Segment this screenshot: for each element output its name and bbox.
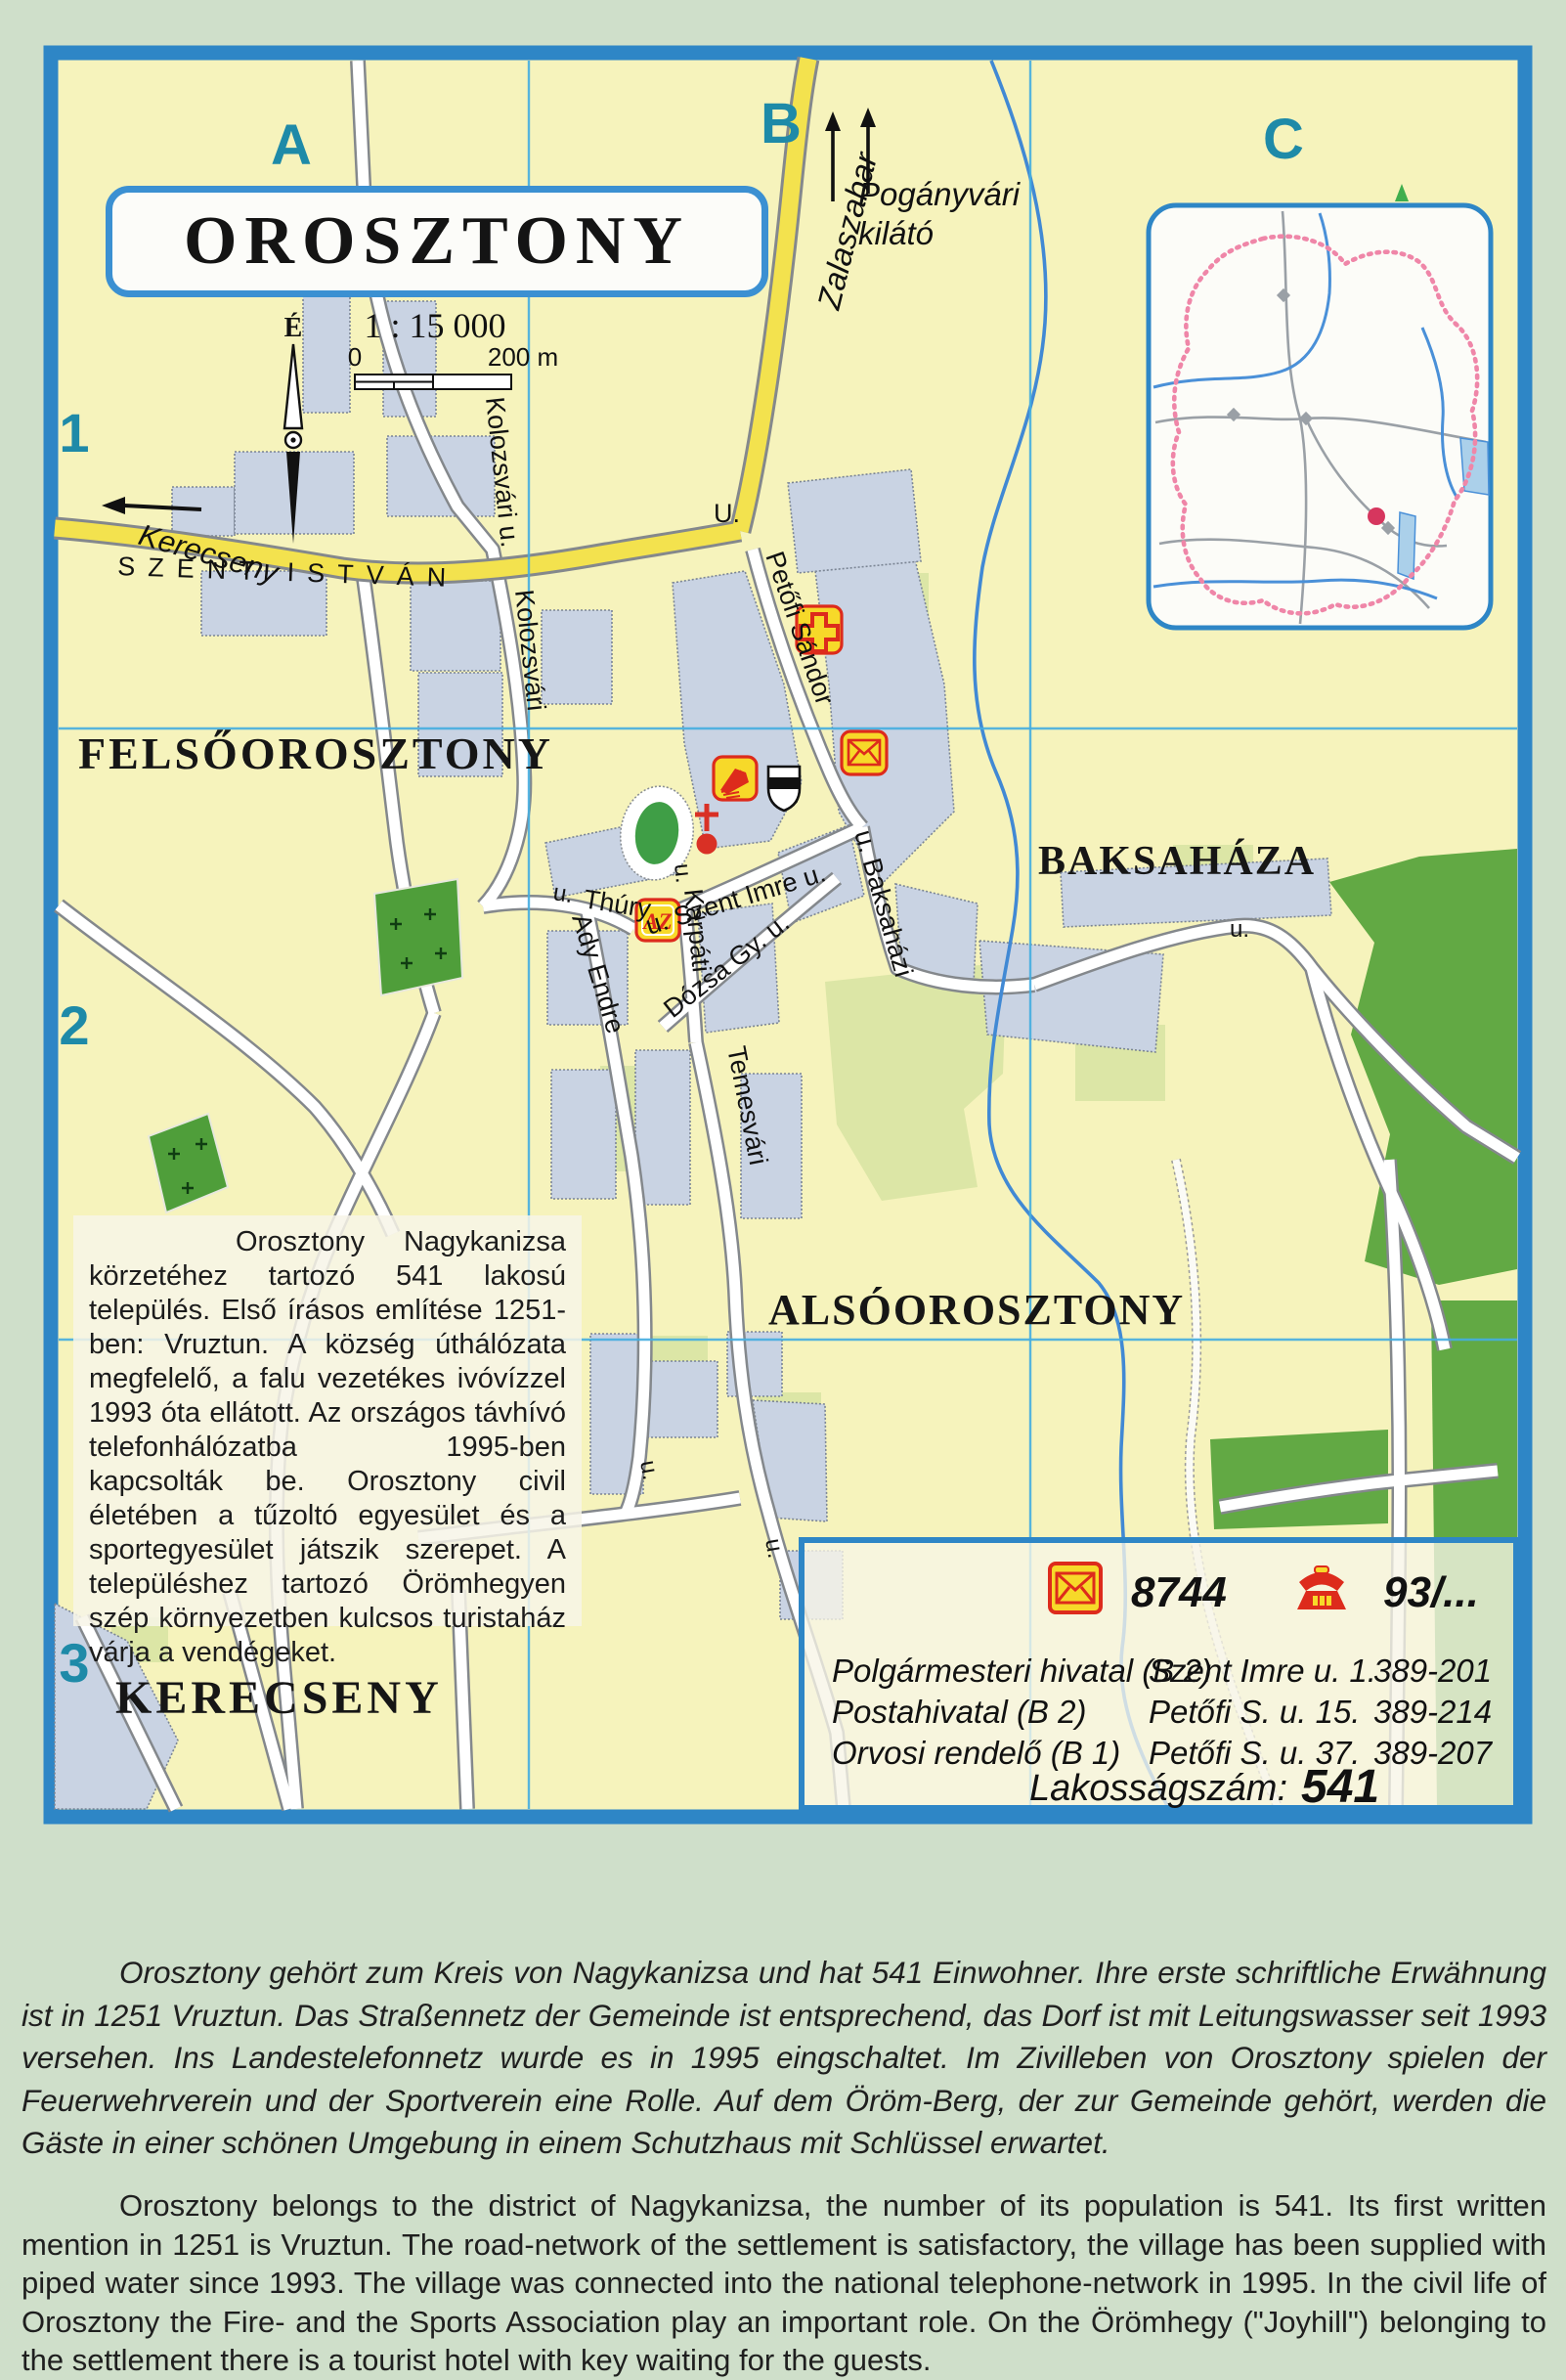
entry-phone: 389-207 — [1373, 1735, 1492, 1772]
grid-column-a: A — [271, 113, 312, 177]
map-title-box: OROSZTONY — [106, 186, 768, 297]
description-box-hu: Orosztony Nagykanizsa körzetéhez tartozó… — [73, 1215, 582, 1626]
location-red-dot — [1368, 507, 1385, 525]
scale-ratio: 1 : 15 000 — [364, 306, 505, 345]
paragraph-english-text: Orosztony belongs to the district of Nag… — [22, 2186, 1546, 2380]
cemetery-1 — [374, 879, 462, 995]
post-envelope-icon — [842, 731, 887, 774]
compass-north-label: É — [284, 313, 303, 343]
scale-distance: 200 m — [488, 342, 558, 372]
postal-envelope-icon — [1047, 1561, 1104, 1615]
entry-phone: 389-201 — [1373, 1653, 1492, 1690]
entry-phone: 389-214 — [1373, 1694, 1492, 1731]
label-baksahaza: BAKSAHÁZA — [1038, 838, 1316, 884]
inset-overview-map — [1149, 184, 1491, 628]
paragraph-english: Orosztony belongs to the district of Nag… — [22, 2186, 1546, 2380]
street-baksahaza-road-u: u. — [1230, 916, 1249, 943]
paragraph-german: Orosztony gehört zum Kreis von Nagykaniz… — [22, 1952, 1546, 2165]
paragraph-german-text: Orosztony gehört zum Kreis von Nagykaniz… — [22, 1952, 1546, 2165]
grid-column-c: C — [1263, 108, 1304, 171]
label-kerecseny: KERECSENY — [115, 1672, 443, 1724]
street-thury-u: u. — [551, 879, 575, 908]
description-text-hu: Orosztony Nagykanizsa körzetéhez tartozó… — [89, 1226, 566, 1668]
phone-prefix: 93/... — [1383, 1568, 1479, 1617]
info-box: 8744 93/... Polgármesteri hivatal (B 2) … — [799, 1537, 1519, 1811]
grid-column-b: B — [761, 92, 802, 155]
entry-name: Orvosi rendelő (B 1) — [832, 1735, 1120, 1772]
library-book-icon — [714, 757, 757, 800]
map-title: OROSZTONY — [184, 202, 690, 281]
entry-address: Petőfi S. u. 15. — [1149, 1694, 1360, 1731]
inset-lake-small — [1398, 512, 1415, 579]
street-karpati-u: u. — [669, 862, 697, 885]
grid-row-1: 1 — [59, 402, 89, 463]
scale-zero: 0 — [348, 342, 362, 372]
lookout-label-line2: kilátó — [858, 215, 934, 251]
entry-address: Szent Imre u. 1. — [1149, 1653, 1376, 1690]
population-value: 541 — [1301, 1760, 1379, 1814]
street-szent-istvan-u: U. — [714, 499, 740, 528]
coat-of-arms-shield-icon — [768, 767, 800, 811]
scale-bar — [355, 375, 511, 389]
inset-lake — [1460, 438, 1489, 495]
postal-code: 8744 — [1131, 1568, 1227, 1617]
label-felsoorosztony: FELSŐOROSZTONY — [78, 728, 553, 778]
lookout-label-line1: Pogányvári — [858, 176, 1022, 212]
grid-row-2: 2 — [59, 994, 89, 1056]
entry-name: Postahivatal (B 2) — [832, 1694, 1086, 1731]
population-label: Lakosságszám: — [1029, 1768, 1287, 1810]
grid-row-3: 3 — [59, 1632, 89, 1694]
label-alsoorosztony: ALSÓOROSZTONY — [768, 1286, 1185, 1334]
telephone-icon — [1291, 1559, 1352, 1615]
